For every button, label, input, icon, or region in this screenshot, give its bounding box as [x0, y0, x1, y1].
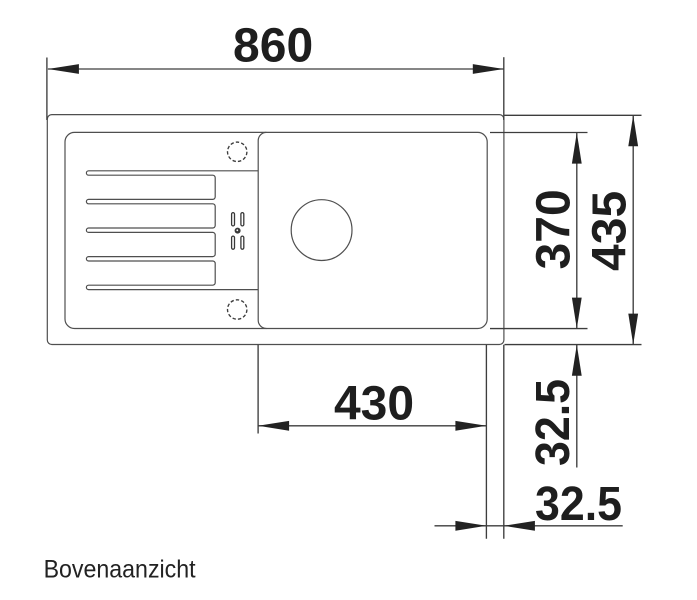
svg-text:435: 435	[583, 191, 636, 271]
svg-text:860: 860	[233, 19, 313, 72]
svg-text:370: 370	[527, 189, 580, 269]
svg-text:430: 430	[334, 377, 414, 430]
svg-text:32.5: 32.5	[535, 478, 622, 531]
svg-text:Bovenaanzicht: Bovenaanzicht	[44, 556, 196, 584]
svg-text:32.5: 32.5	[527, 379, 580, 466]
